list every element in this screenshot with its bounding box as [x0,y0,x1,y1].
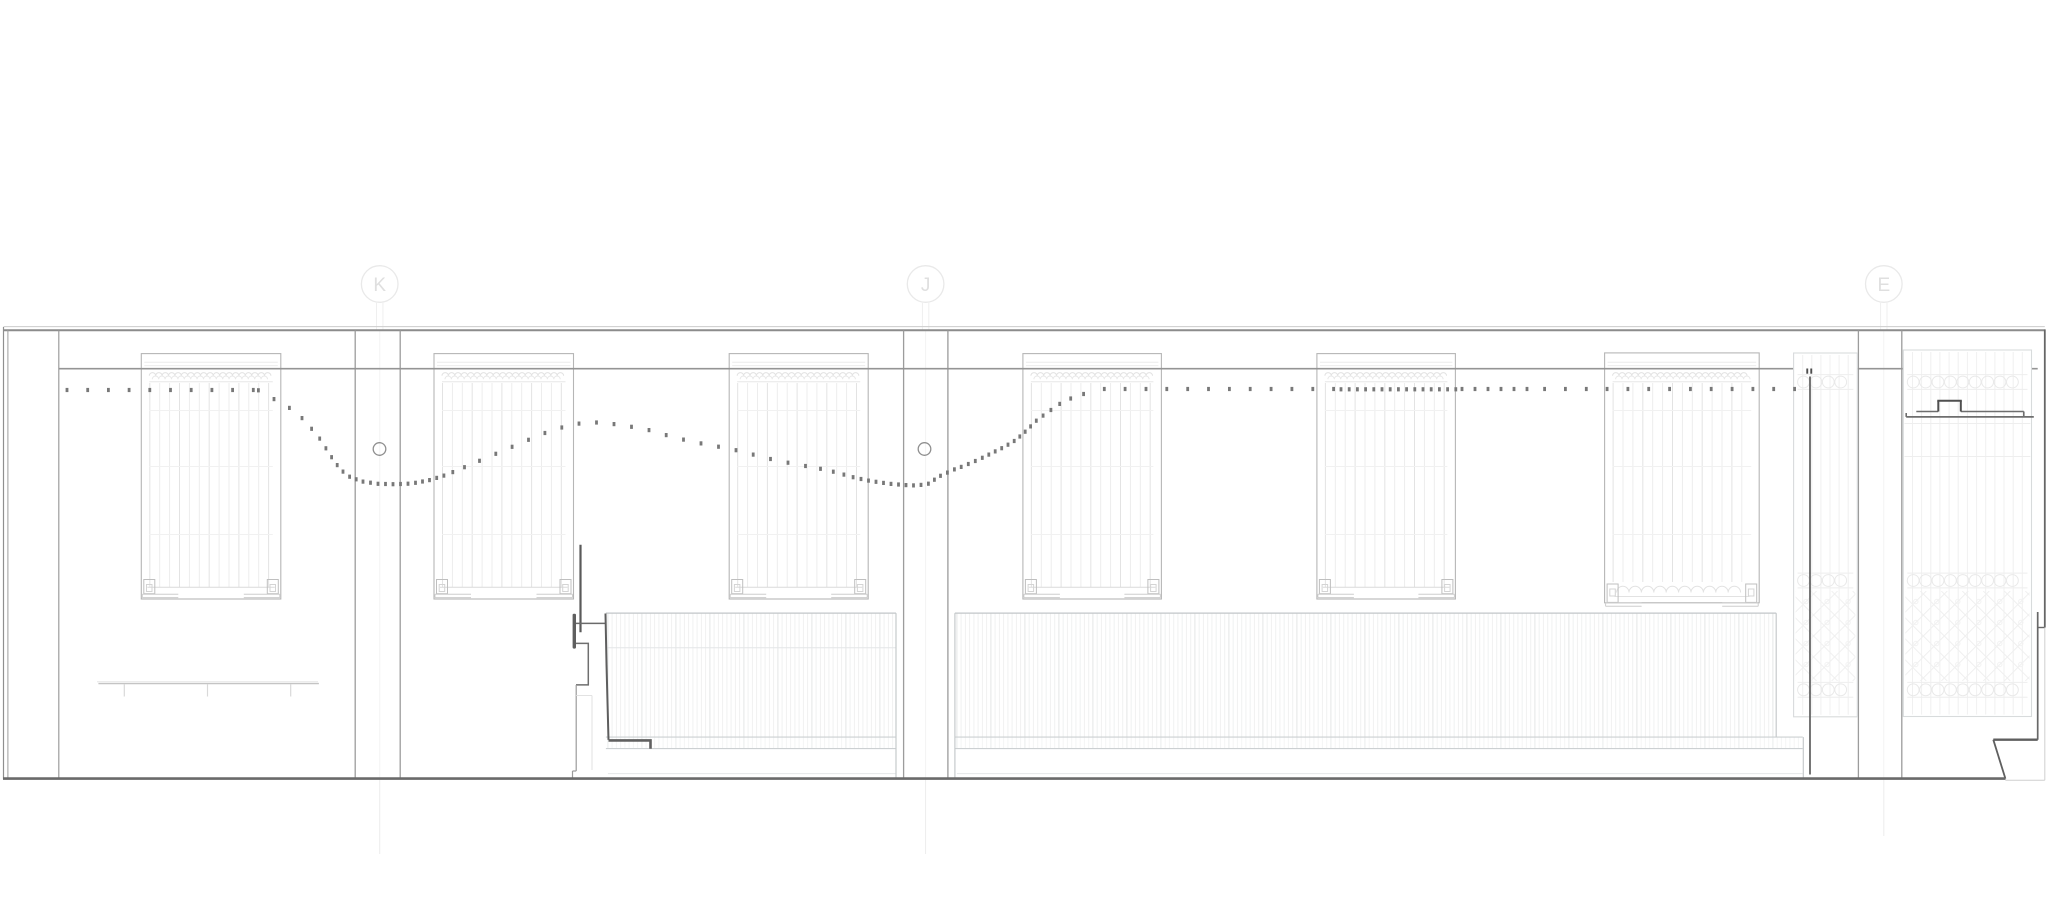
svg-text:E: E [1877,275,1890,296]
svg-text:K: K [373,275,386,296]
svg-text:J: J [921,275,931,296]
